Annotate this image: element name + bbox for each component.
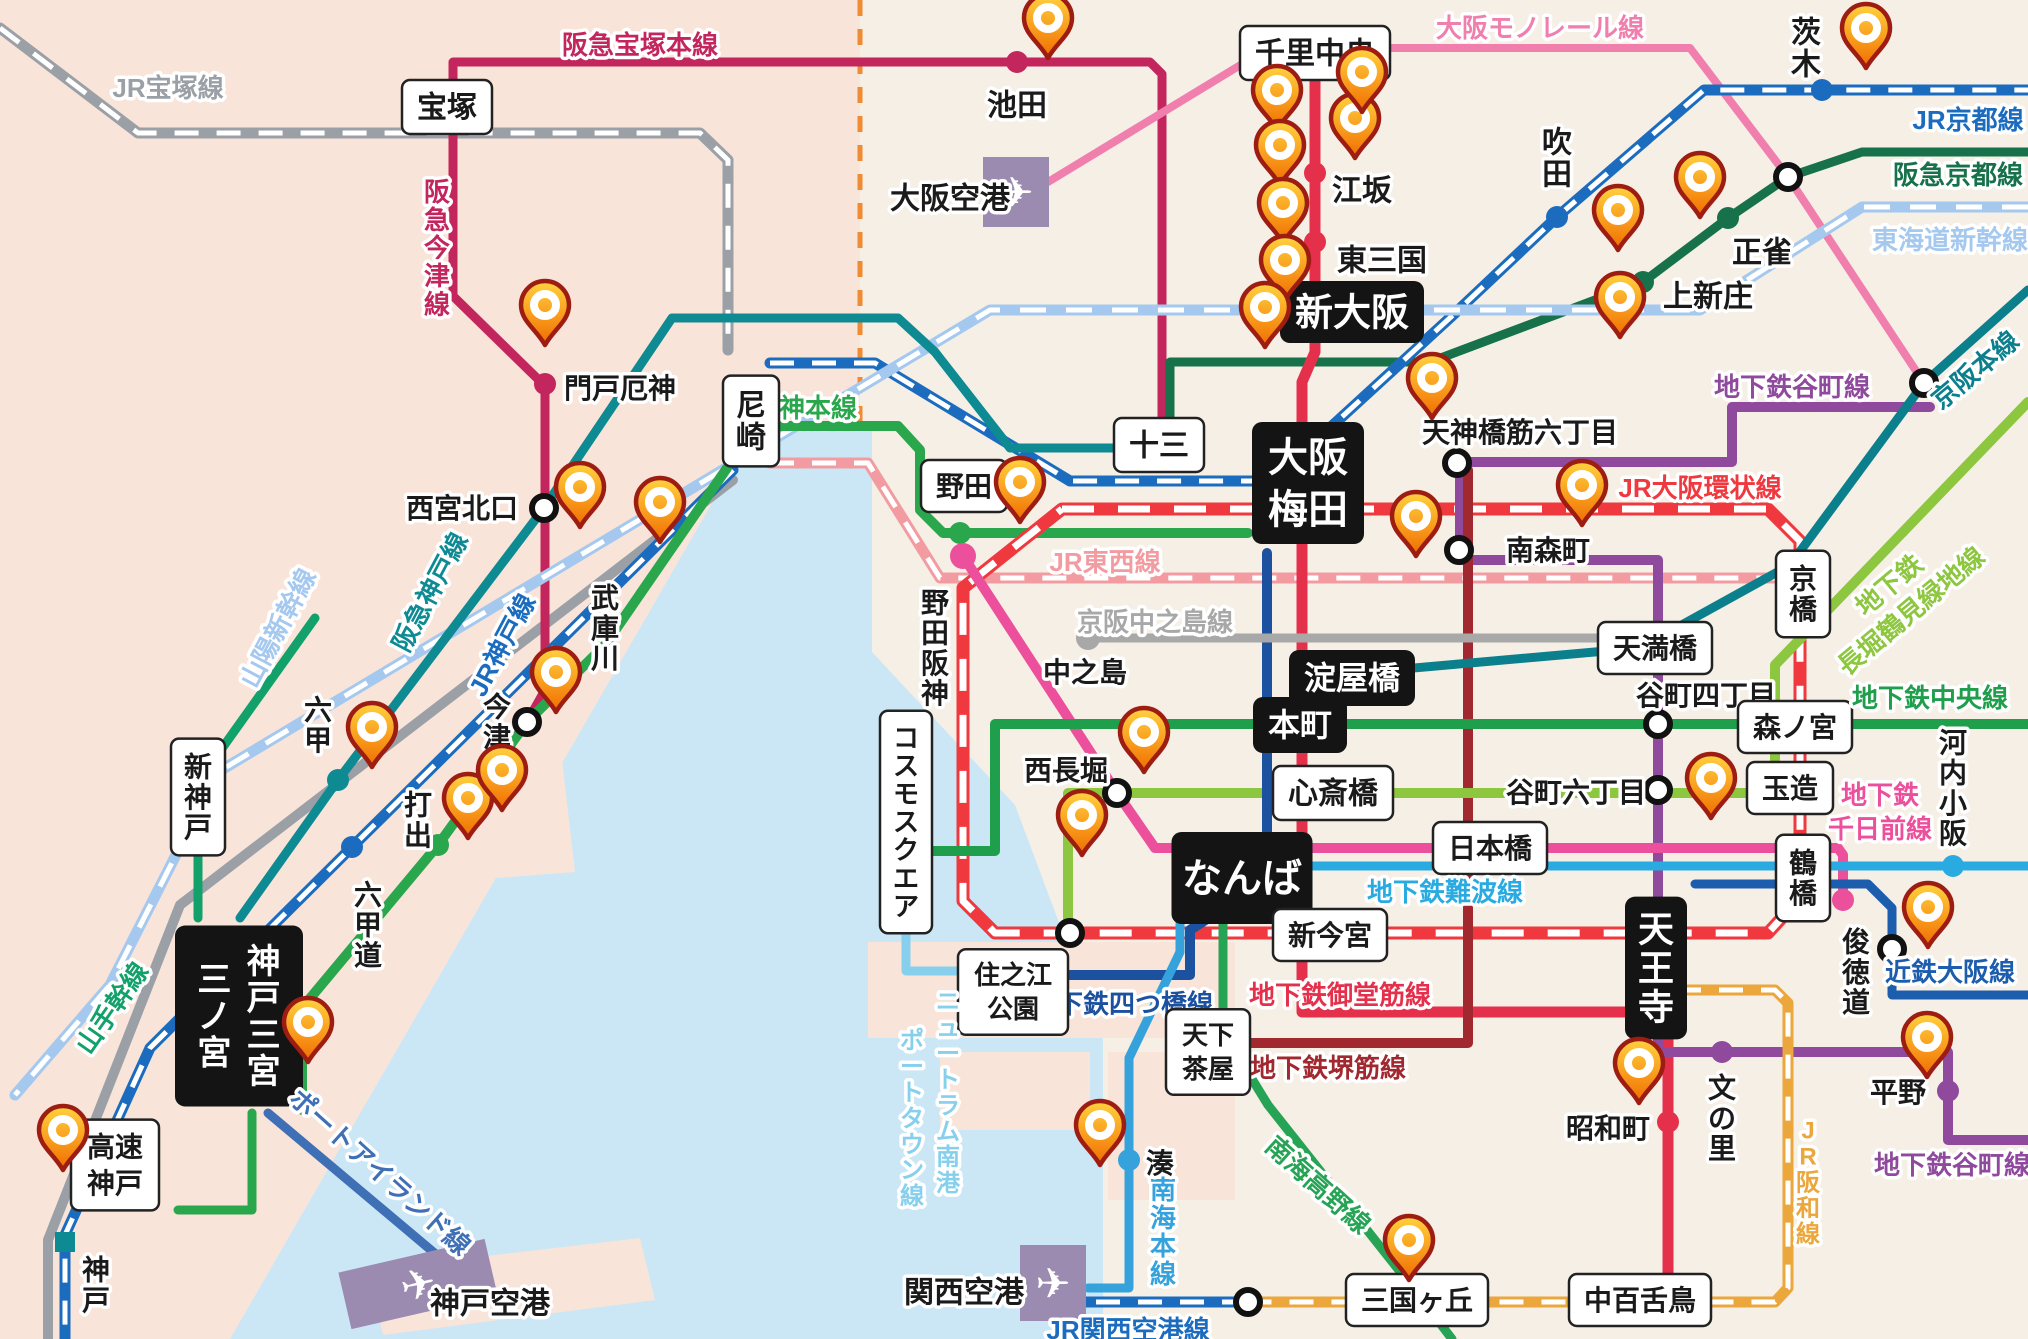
label-十三[interactable]: 十三 [1114,418,1204,472]
label-text: 東三国 [1337,245,1427,278]
label-天下茶屋[interactable]: 天下茶屋 [1166,1009,1250,1095]
station-dot[interactable] [1717,207,1739,229]
label-text: 新神戸 [184,752,212,843]
label-text: 上新庄 [1663,280,1753,314]
label-text: 武庫川 [591,583,619,674]
label-JR宝塚線: JR宝塚線 [112,73,223,103]
label-地下鉄難波線: 地下鉄難波線 [1367,877,1523,907]
label-text: 打出 [404,790,432,851]
station-dot[interactable] [1942,855,1964,877]
station-dot[interactable] [1811,79,1833,101]
label-近鉄大阪線: 近鉄大阪線 [1885,957,2015,987]
label-中百舌鳥[interactable]: 中百舌鳥 [1569,1274,1711,1326]
label-text: 大阪モノレール線 [1436,13,1644,43]
label-text: 平野 [1870,1077,1926,1108]
label-正雀: 正雀 [1732,237,1792,270]
label-text: 文の里 [1708,1072,1736,1164]
label-河内小阪: 河内小阪 [1939,727,1967,849]
label-谷町六丁目: 谷町六丁目 [1506,777,1646,808]
label-宝塚[interactable]: 宝塚 [402,80,492,134]
label-text: 六甲 [304,695,332,756]
label-天神橋筋六丁目: 天神橋筋六丁目 [1422,416,1618,448]
label-text: JR宝塚線 [112,73,223,103]
airport-kansai[interactable]: ✈ [1020,1245,1086,1321]
label-門戸厄神: 門戸厄神 [564,373,676,404]
label-text: 地下鉄中央線 [1852,683,2008,713]
label-上新庄: 上新庄 [1663,280,1753,314]
interchange-circle[interactable] [515,710,539,734]
label-ポートタウン線: ポートタウン線 [900,1027,924,1211]
label-text: 天満橋 [1613,633,1698,664]
label-ニュートラム南港: ニュートラム南港 [936,989,961,1197]
label-text: 新今宮 [1288,919,1372,951]
label-新今宮[interactable]: 新今宮 [1273,909,1387,961]
label-text: なんば [1182,857,1302,901]
label-text: 門戸厄神 [564,373,676,404]
label-昭和町: 昭和町 [1566,1113,1650,1144]
label-text: 南森町 [1506,535,1590,566]
label-打出: 打出 [404,790,432,851]
station-dot[interactable] [341,836,363,858]
label-阪急今津線: 阪急今津線 [424,177,450,319]
label-text: 東海道新幹線 [1872,225,2028,255]
label-玉造[interactable]: 玉造 [1747,762,1833,814]
label-text: コスモスクエア [893,723,919,921]
label-text: 野田阪神 [921,587,949,709]
label-阪急京都線: 阪急京都線 [1893,160,2023,190]
label-湊: 湊 [1146,1148,1174,1179]
label-text: 阪急京都線 [1893,160,2023,190]
label-text: 鶴橋 [1789,848,1818,909]
label-西長堀: 西長堀 [1024,755,1108,786]
label-text: 心斎橋 [1288,777,1379,811]
label-text: 河内小阪 [1939,727,1967,849]
label-地下鉄中央線: 地下鉄中央線 [1852,683,2008,713]
label-西宮北口: 西宮北口 [406,492,518,524]
label-天満橋[interactable]: 天満橋 [1598,622,1712,674]
label-六甲: 六甲 [304,695,332,756]
label-尼崎[interactable]: 尼崎 [723,376,779,467]
label-text: 地下鉄堺筋線 [1250,1053,1406,1083]
island [940,1052,1090,1130]
label-新神戸[interactable]: 新神戸 [171,739,225,856]
label-text: 淀屋橋 [1304,660,1401,696]
label-text: 湊 [1146,1148,1174,1179]
label-中之島: 中之島 [1043,656,1127,688]
label-text: ニュートラム南港 [936,989,961,1197]
label-text: 京阪中之島線 [1077,607,1233,637]
label-text: 茨木 [1790,16,1821,81]
label-新大阪[interactable]: 新大阪 [1280,281,1424,343]
label-text: 西宮北口 [406,492,518,524]
label-text: JR関西空港線 [1046,1315,1209,1339]
label-text: 池田 [987,90,1047,123]
label-text: 天下 [1182,1020,1234,1050]
label-text: 中之島 [1043,656,1127,688]
label-text: 天神橋筋六丁目 [1422,416,1618,448]
label-大阪空港: 大阪空港 [890,183,1011,216]
station-dot[interactable] [327,769,349,791]
station-dot[interactable] [534,373,556,395]
label-text: 神戸 [87,1168,143,1199]
label-本町[interactable]: 本町 [1253,697,1347,753]
interchange-circle[interactable] [1058,921,1082,945]
station-dot[interactable] [1546,206,1568,228]
label-text: ポートタウン線 [900,1027,924,1211]
label-text: 阪急宝塚本線 [562,30,718,60]
label-text: 近鉄大阪線 [1885,957,2015,987]
label-text: JR東西線 [1049,547,1160,577]
osaka-kobe-transit-map: ✈✈✈JR宝塚線阪急宝塚本線宝塚池田阪急今津線大阪モノレール線千里中央江坂東三国… [0,0,2028,1339]
label-text: 梅田 [1268,488,1348,532]
label-文の里: 文の里 [1708,1072,1736,1164]
label-心斎橋[interactable]: 心斎橋 [1273,766,1393,820]
label-text: 地下鉄難波線 [1367,877,1523,907]
label-text: 三国ヶ丘 [1361,1285,1473,1316]
label-日本橋[interactable]: 日本橋 [1433,822,1547,874]
label-京橋[interactable]: 京橋 [1776,551,1830,637]
station-dot[interactable] [950,543,976,569]
label-吹田: 吹田 [1542,126,1572,191]
label-text: 谷町六丁目 [1506,777,1646,808]
label-大阪モノレール線: 大阪モノレール線 [1436,13,1644,43]
label-text: 地下鉄御堂筋線 [1249,980,1431,1010]
label-住之江公園[interactable]: 住之江公園 [958,949,1068,1035]
label-text: 吹田 [1542,126,1572,191]
label-text: 京橋 [1789,563,1818,625]
label-text: 地下鉄 [1841,780,1919,810]
label-text: 天王寺 [1638,909,1674,1028]
label-text: 正雀 [1732,237,1792,270]
label-JR京都線: JR京都線 [1912,105,2023,135]
label-text: 宝塚 [417,91,477,125]
label-text: 千日前線 [1828,814,1932,844]
label-南海本線: 南海本線 [1150,1175,1176,1289]
station-dot[interactable] [1711,1041,1733,1063]
label-text: 大阪空港 [890,183,1011,216]
transit-map-stage: ✈✈✈JR宝塚線阪急宝塚本線宝塚池田阪急今津線大阪モノレール線千里中央江坂東三国… [0,0,2028,1339]
station-dot[interactable] [1832,889,1854,911]
label-text: 江坂 [1332,175,1392,208]
label-text: 玉造 [1762,773,1818,804]
label-JR関西空港線: JR関西空港線 [1046,1315,1209,1339]
label-text: 高速 [87,1132,143,1163]
label-阪急宝塚本線: 阪急宝塚本線 [562,30,718,60]
label-JR東西線: JR東西線 [1049,547,1160,577]
label-text: 神戸三宮 [247,943,281,1091]
label-text: 新大阪 [1295,292,1409,334]
label-神戸: 神戸 [82,1255,110,1316]
station-dot[interactable] [949,522,971,544]
interchange-circle[interactable] [532,496,556,520]
label-地下鉄谷町線: 地下鉄谷町線 [1874,1150,2028,1180]
label-関西空港: 関西空港 [904,1277,1025,1310]
label-神戸空港: 神戸空港 [430,1288,551,1321]
interchange-circle[interactable] [1105,781,1129,805]
label-text: 神戸空港 [430,1288,551,1321]
station-dot[interactable] [1937,1080,1959,1102]
label-text: 中百舌鳥 [1584,1284,1696,1316]
label-text: 公園 [987,994,1039,1024]
interchange-circle[interactable] [1776,165,1800,189]
label-地下鉄谷町線: 地下鉄谷町線 [1714,372,1870,402]
label-text: 六甲道 [354,880,382,971]
plane-icon: ✈ [1035,1260,1070,1307]
label-text: 森ノ宮 [1753,711,1837,743]
station-dot[interactable] [1118,1149,1140,1171]
interchange-circle[interactable] [1445,451,1469,475]
label-text: 日本橋 [1448,833,1533,864]
label-text: 阪急今津線 [424,177,450,319]
label-東三国: 東三国 [1337,245,1427,278]
label-text: 神戸 [82,1255,110,1316]
interchange-circle[interactable] [1236,1290,1260,1314]
label-text: 関西空港 [904,1277,1025,1310]
label-text: 地下鉄谷町線 [1874,1150,2028,1180]
label-野田阪神: 野田阪神 [921,587,949,709]
label-text: 南海本線 [1150,1175,1176,1289]
label-text: 十三 [1129,430,1189,463]
label-text: JR京都線 [1912,105,2023,135]
label-天王寺[interactable]: 天王寺 [1625,897,1687,1040]
station-dot[interactable] [1304,162,1326,184]
label-鶴橋[interactable]: 鶴橋 [1776,835,1830,921]
label-南森町: 南森町 [1506,535,1590,566]
label-text: 野田 [936,471,992,502]
label-text: 大阪 [1268,436,1348,480]
label-text: 本町 [1268,707,1332,743]
label-text: 地下鉄谷町線 [1714,372,1870,402]
label-text: JR大阪環状線 [1618,473,1781,503]
label-三国ヶ丘[interactable]: 三国ヶ丘 [1346,1274,1488,1326]
label-地下鉄御堂筋線: 地下鉄御堂筋線 [1249,980,1431,1010]
label-森ノ宮[interactable]: 森ノ宮 [1738,701,1852,753]
label-武庫川: 武庫川 [591,583,619,674]
label-text: 俊徳道 [1841,926,1870,1018]
interchange-circle[interactable] [1447,538,1471,562]
label-text: 三ノ宮 [197,961,231,1072]
station-square[interactable] [55,1232,75,1252]
label-JR大阪環状線: JR大阪環状線 [1618,473,1781,503]
interchange-circle[interactable] [1646,778,1670,802]
label-text: 尼崎 [736,389,766,454]
label-コスモスクエア[interactable]: コスモスクエア [880,711,932,934]
label-text: 西長堀 [1024,755,1108,786]
label-江坂: 江坂 [1332,175,1392,208]
label-茨木: 茨木 [1790,16,1821,81]
label-text: 茶屋 [1182,1054,1234,1084]
label-六甲道: 六甲道 [354,880,382,971]
station-dot[interactable] [1657,1111,1679,1133]
station-dot[interactable] [1006,51,1028,73]
label-地下鉄堺筋線: 地下鉄堺筋線 [1250,1053,1406,1083]
label-平野: 平野 [1870,1077,1926,1108]
label-text: 住之江 [974,960,1052,990]
label-text: 昭和町 [1566,1113,1650,1144]
interchange-circle[interactable] [1646,712,1670,736]
label-大阪梅田[interactable]: 大阪梅田 [1252,422,1364,544]
label-池田: 池田 [987,90,1047,123]
label-東海道新幹線: 東海道新幹線 [1872,225,2028,255]
label-京阪中之島線: 京阪中之島線 [1077,607,1233,637]
label-俊徳道: 俊徳道 [1841,926,1870,1018]
